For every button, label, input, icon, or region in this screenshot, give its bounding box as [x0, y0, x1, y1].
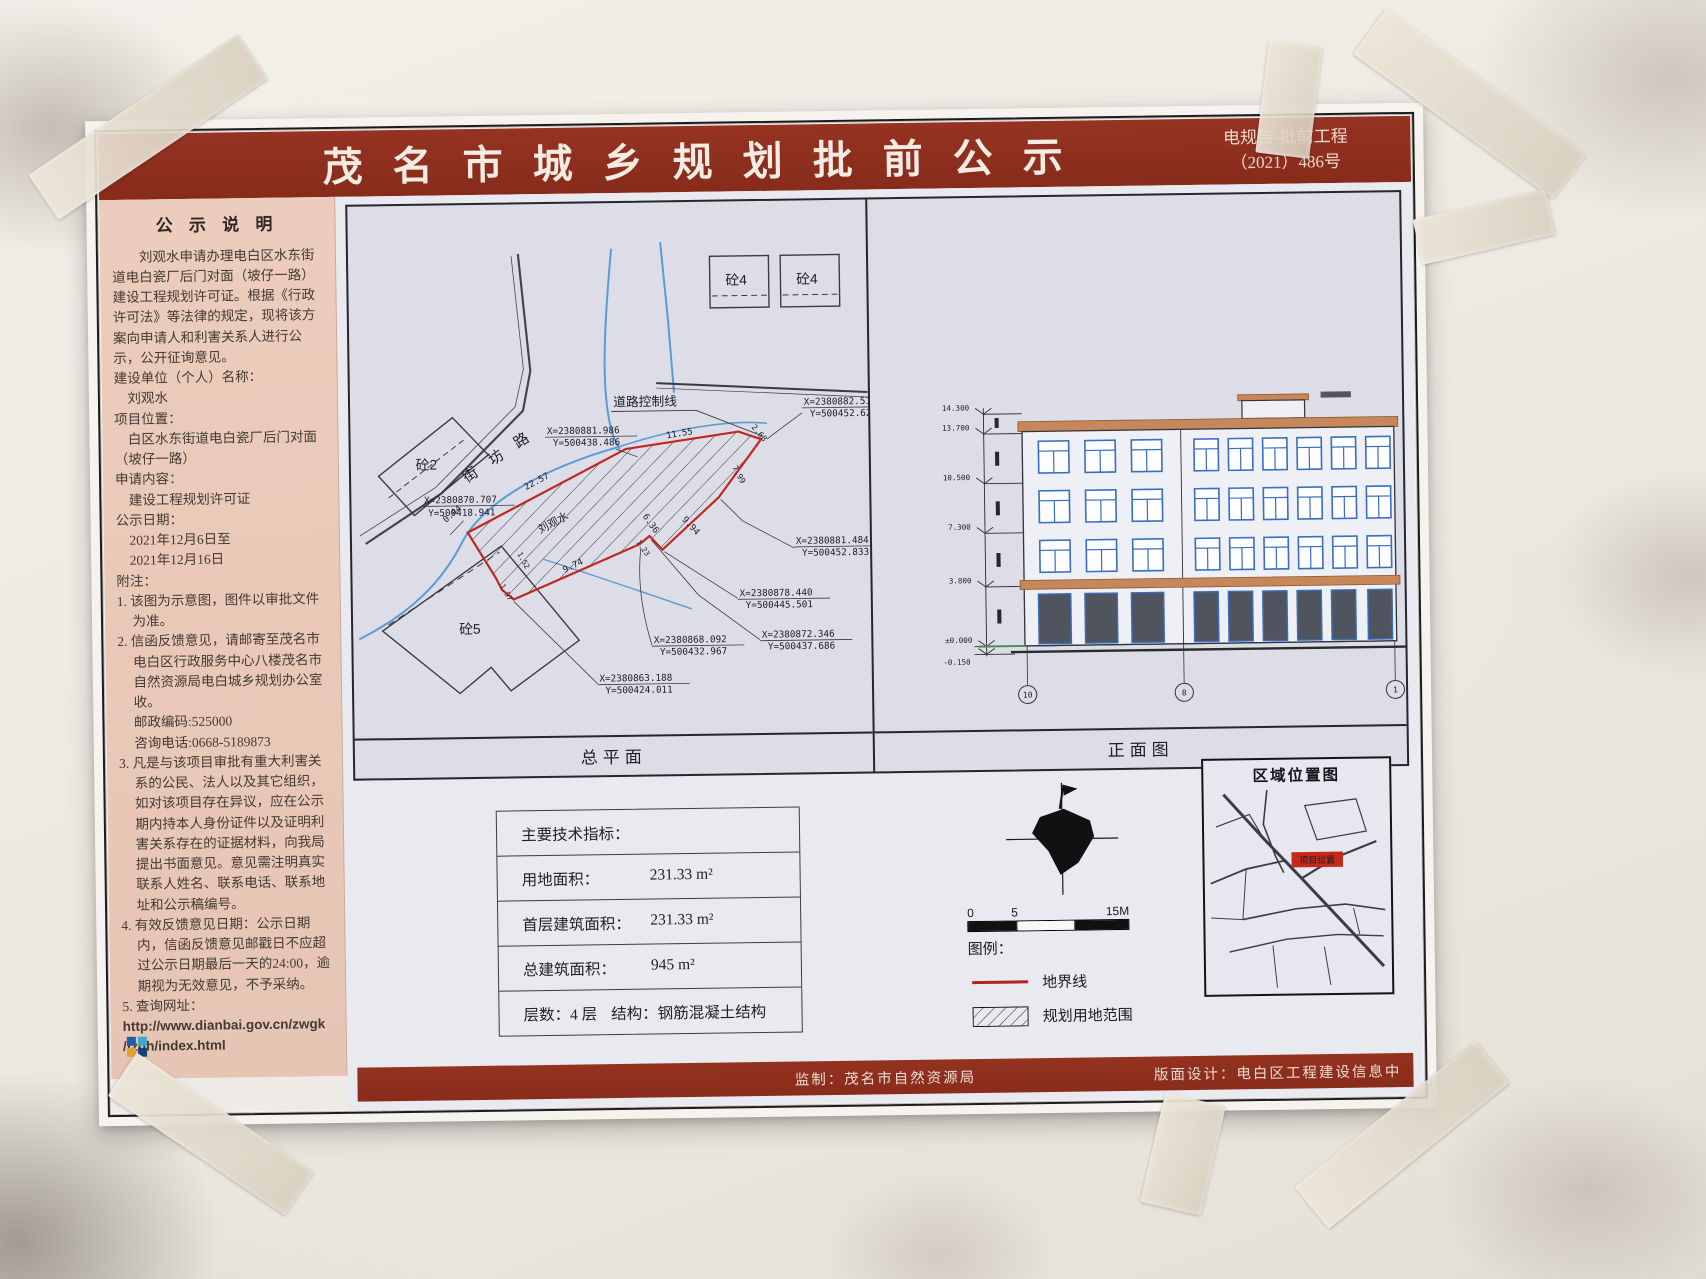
elevation-cell: 14.300 13.700 10.500 7.300 3.800 ±0.000 … — [867, 192, 1407, 771]
svg-text:X=2380872.346: X=2380872.346 — [762, 629, 835, 641]
drawings-panel: 砼4 砼4 砼2 砼5 — [345, 190, 1409, 781]
footer-producer: 监制：茂名市自然资源局 — [795, 1066, 977, 1090]
svg-text:X=2380881.986: X=2380881.986 — [547, 425, 620, 437]
control-line-label: 道路控制线 — [613, 394, 677, 410]
legend-item-boundary: 地界线 — [972, 970, 1087, 993]
svg-text:X=2380882.512: X=2380882.512 — [804, 396, 873, 408]
coord-label: X=2380882.512 Y=500452.625 — [766, 396, 872, 439]
sidebar-intro: 刘观水申请办理电白区水东街道电白瓷厂后门对面（坡仔一路）建设工程规划许可证。根据… — [112, 245, 325, 369]
scale-tick-label: 15M — [1106, 904, 1130, 918]
footer-designer: 版面设计：电白区工程建设信息中 — [1154, 1060, 1402, 1084]
level-label: -0.150 — [943, 658, 971, 667]
location-map-drawing: 项目位置 — [1205, 784, 1390, 993]
svg-text:Y=500452.833: Y=500452.833 — [802, 547, 869, 559]
field-value: 白区水东街道电白瓷厂后门对面 — [114, 427, 325, 450]
svg-text:X=2380863.188: X=2380863.188 — [599, 673, 672, 685]
main-area: 砼4 砼4 砼2 砼5 — [335, 182, 1424, 1110]
level-label: 7.300 — [948, 523, 971, 532]
note-item: 3. 凡是与该项目审批有重大利害关系的公民、法人以及其它组织，如对该项目存在异议… — [119, 751, 332, 916]
indicators-table: 主要技术指标： 用地面积： 231.33 m² 首层建筑面积： 231.33 m… — [496, 806, 803, 1036]
page-title: 茂 名 市 城 乡 规 划 批 前 公 示 — [98, 123, 1167, 196]
svg-text:Y=500445.501: Y=500445.501 — [746, 599, 813, 611]
elevation-drawing: 14.300 13.700 10.500 7.300 3.800 ±0.000 … — [867, 192, 1407, 731]
scale-bar: 0 5 15M — [967, 904, 1129, 932]
table-row: 首层建筑面积： 231.33 m² — [498, 897, 801, 946]
site-plan-caption: 总平面 — [355, 731, 873, 778]
query-url-line2: /fzgh/index.html — [123, 1034, 334, 1057]
indicators-title: 主要技术指标： — [521, 822, 630, 846]
axis-bubble: 10 — [1022, 691, 1032, 700]
svg-text:Y=500418.941: Y=500418.941 — [428, 507, 495, 519]
sidebar-heading: 公 示 说 明 — [111, 211, 322, 239]
tape-strip-right — [1413, 189, 1556, 264]
table-row: 层数：4 层 结构：钢筋混凝土结构 — [499, 987, 802, 1035]
building-label: 砼2 — [416, 456, 438, 472]
table-row: 总建筑面积： 945 m² — [499, 942, 802, 991]
svg-text:X=2380878.440: X=2380878.440 — [740, 587, 813, 599]
notice-poster: 茂 名 市 城 乡 规 划 批 前 公 示 电规告-批前工程 （2021）486… — [85, 103, 1437, 1127]
hatch-swatch-icon — [972, 1006, 1028, 1027]
svg-text:Y=500437.686: Y=500437.686 — [768, 641, 836, 653]
coord-label: X=2380878.440 Y=500445.501 — [664, 549, 830, 612]
notice-explanation-sidebar: 公 示 说 明 刘观水申请办理电白区水东街道电白瓷厂后门对面（坡仔一路）建设工程… — [99, 197, 347, 1079]
note-item: 4. 有效反馈意见日期：公示日期内，信函反馈意见邮戳日不应超过公示日期最后一天的… — [121, 913, 333, 997]
level-label: 14.300 — [941, 404, 969, 413]
legend-heading: 图例： — [968, 938, 1013, 960]
scale-tick-label: 5 — [1011, 905, 1018, 919]
project-location-label: 项目位置 — [1299, 854, 1335, 866]
svg-text:Y=500438.486: Y=500438.486 — [553, 437, 621, 449]
location-map: 区域位置图 — [1201, 756, 1394, 997]
note-item: 1. 该图为示意图，图件以审批文件为准。 — [117, 589, 329, 632]
svg-text:X=2380881.484: X=2380881.484 — [796, 535, 869, 547]
coord-label: X=2380881.484 Y=500452.833 — [721, 497, 870, 560]
site-plan-drawing: 砼4 砼4 砼2 砼5 — [347, 200, 872, 739]
svg-text:Y=500424.011: Y=500424.011 — [605, 685, 672, 697]
dimension-label: 1.23 — [634, 538, 652, 558]
level-label: ±0.000 — [945, 636, 973, 645]
note-item: 2. 信函反馈意见，请邮寄至茂名市电白区行政服务中心八楼茂名市自然资源局电白城乡… — [117, 629, 329, 713]
axis-bubble: 1 — [1393, 685, 1398, 694]
site-plan-cell: 砼4 砼4 砼2 砼5 — [347, 199, 875, 778]
legend-item-planning-area: 规划用地范围 — [972, 1004, 1132, 1027]
level-label: 13.700 — [942, 423, 970, 432]
svg-text:X=2380868.092: X=2380868.092 — [654, 634, 727, 646]
query-url-line1: http://www.dianbai.gov.cn/zwgk — [123, 1014, 334, 1037]
boundary-line-icon — [972, 980, 1028, 984]
location-map-title: 区域位置图 — [1203, 762, 1389, 787]
coord-label: X=2380868.092 Y=500432.967 — [639, 547, 744, 659]
building-label: 砼5 — [459, 621, 481, 637]
axis-bubble: 8 — [1181, 688, 1186, 697]
building-label: 砼4 — [725, 271, 747, 287]
north-arrow-icon — [1001, 776, 1123, 900]
bottom-strip: 主要技术指标： 用地面积： 231.33 m² 首层建筑面积： 231.33 m… — [353, 772, 1413, 1064]
scale-tick-label: 0 — [967, 906, 974, 920]
level-label: 3.800 — [948, 576, 971, 585]
table-row: 用地面积： 231.33 m² — [497, 852, 800, 901]
svg-text:Y=500432.967: Y=500432.967 — [660, 646, 727, 658]
building-label: 砼4 — [796, 270, 818, 286]
svg-text:X=2380870.707: X=2380870.707 — [424, 494, 497, 506]
svg-text:Y=500452.625: Y=500452.625 — [810, 408, 872, 420]
level-label: 10.500 — [942, 473, 970, 482]
poster-content: 公 示 说 明 刘观水申请办理电白区水东街道电白瓷厂后门对面（坡仔一路）建设工程… — [99, 182, 1424, 1113]
